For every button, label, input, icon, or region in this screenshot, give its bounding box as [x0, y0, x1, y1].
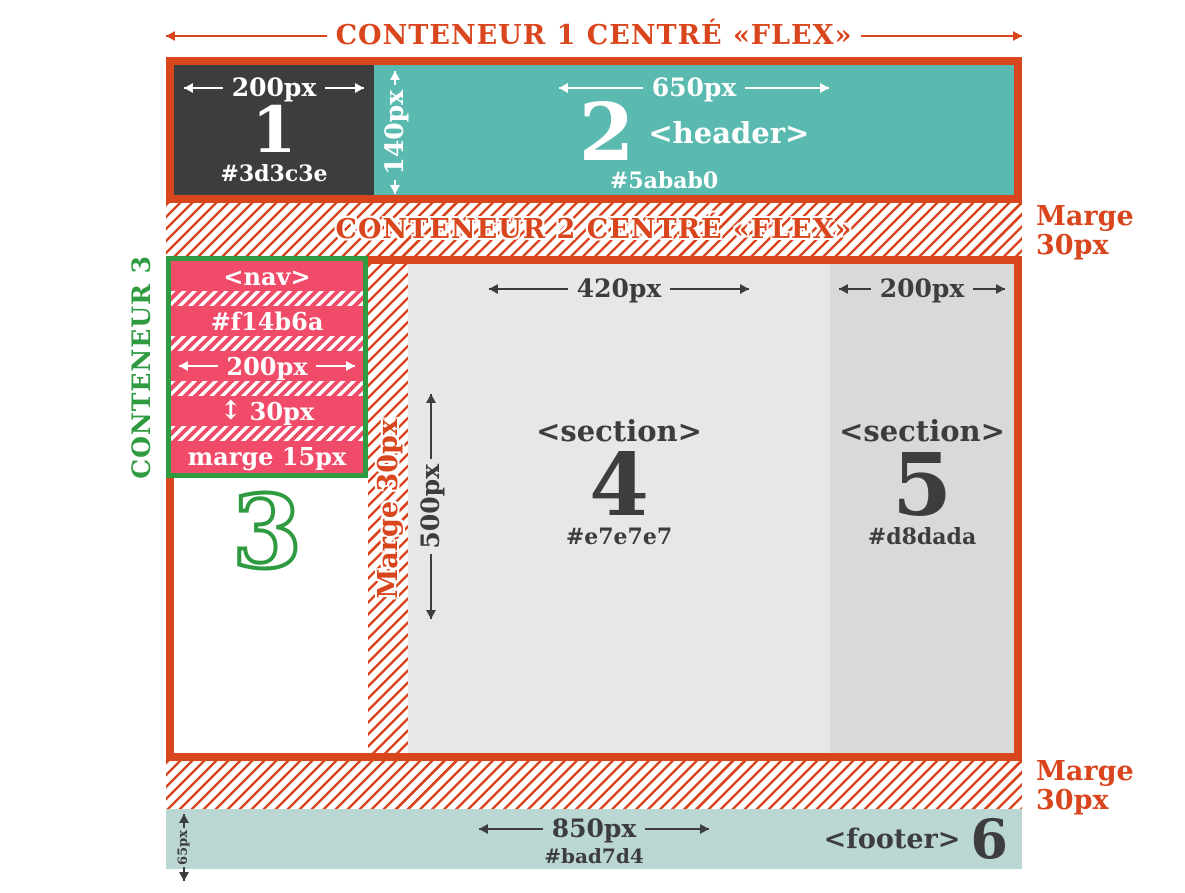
section5-block: 200px <section> 5 #d8dada: [830, 264, 1014, 753]
block2-height-dim: 140px: [380, 71, 409, 189]
marge-30px-label-bottom: Marge 30px: [1036, 757, 1185, 815]
conteneur3-label-wrap: CONTENEUR 3: [122, 253, 160, 481]
dim-line-left: [184, 87, 223, 89]
margin-band-top: CONTENEUR 2 CENTRÉ «FLEX»: [166, 203, 1022, 256]
nav-width-dim: 200px: [171, 351, 363, 381]
nav-hex-row: #f14b6a: [171, 306, 363, 336]
dim-line-right: [670, 288, 749, 290]
footer-number: 6: [970, 815, 1008, 864]
section5-number: 5: [892, 448, 952, 524]
nav-hex: #f14b6a: [211, 307, 324, 336]
dim-line-left: [166, 35, 327, 37]
conteneur1-title-dim: CONTENEUR 1 CENTRÉ «FLEX»: [166, 20, 1022, 51]
conteneur1-title: CONTENEUR 1 CENTRÉ «FLEX»: [336, 20, 853, 51]
section5-width-label: 200px: [880, 274, 965, 303]
dim-line-right: [316, 365, 355, 367]
conteneur1-container: 200px 1 #3d3c3e 140px 650px 2 <header> #…: [166, 57, 1022, 203]
block1-number: 1: [252, 104, 297, 158]
section4-content: <section> 4 #e7e7e7: [408, 414, 830, 550]
conteneur3-label: CONTENEUR 3: [127, 255, 156, 479]
section5-hex: #d8dada: [868, 524, 976, 550]
nav-hatch-stripe: [171, 381, 363, 396]
nav-hatch-stripe: [171, 336, 363, 351]
block2-heading: 2 <header>: [579, 100, 810, 166]
block2-hex: #5abab0: [610, 168, 718, 194]
dim-line-down: [430, 554, 432, 619]
margin-strip-label: Marge 30px: [373, 419, 404, 599]
dim-line-right: [325, 87, 364, 89]
footer-width-dim: 850px: [479, 814, 709, 843]
footer-heading: <footer> 6: [824, 809, 1008, 869]
section4-block: 420px 500px <section> 4 #e7e7e7: [408, 264, 830, 753]
marge-30px-label-top: Marge 30px: [1036, 202, 1185, 260]
nav-block: <nav> #f14b6a 200px ↕ 30px: [166, 256, 368, 478]
nav-row-height-row: ↕ 30px: [171, 396, 363, 426]
footer-tag: <footer>: [824, 824, 961, 855]
footer-hex: #bad7d4: [544, 844, 644, 868]
nav-margin-label: marge 15px: [188, 442, 346, 471]
flex-layout-diagram: CONTENEUR 1 CENTRÉ «FLEX» 200px 1 #3d3c3…: [0, 0, 1185, 893]
footer-block: 65px 850px #bad7d4 <footer> 6: [166, 809, 1022, 869]
block1-hex: #3d3c3e: [220, 161, 327, 187]
section4-width-label: 420px: [577, 274, 662, 303]
dim-line-left: [179, 365, 218, 367]
dim-line-left: [559, 87, 643, 89]
dim-line-down: [394, 180, 396, 194]
section5-width-dim: 200px: [839, 274, 1005, 303]
block1: 200px 1 #3d3c3e: [174, 65, 374, 195]
section4-width-dim: 420px: [489, 274, 749, 303]
nav-margin-row: marge 15px: [171, 441, 363, 471]
dim-line-left: [839, 288, 871, 290]
section5-content: <section> 5 #d8dada: [830, 414, 1014, 550]
nav-tag: <nav>: [223, 262, 310, 291]
block2-width-label: 650px: [652, 73, 737, 102]
dim-line-right: [645, 828, 709, 830]
nav-tag-row: <nav>: [171, 261, 363, 291]
dim-line-left: [489, 288, 568, 290]
block2-header: 140px 650px 2 <header> #5abab0: [374, 65, 1014, 195]
dim-line-left: [479, 828, 543, 830]
conteneur2-container: <nav> #f14b6a 200px ↕ 30px: [166, 256, 1022, 761]
margin-strip-vertical: Marge 30px: [368, 264, 408, 753]
nav-hatch-stripe: [171, 426, 363, 441]
conteneur2-inner: <nav> #f14b6a 200px ↕ 30px: [174, 264, 1014, 753]
dim-line-right: [745, 87, 829, 89]
arrow-up-down-icon: ↕: [220, 396, 242, 426]
dim-line-down: [183, 867, 185, 881]
block3-number: 3: [166, 482, 368, 582]
section4-number: 4: [589, 448, 649, 524]
dim-line-right: [973, 288, 1005, 290]
nav-width-label: 200px: [226, 352, 307, 381]
nav-row-height-label: 30px: [250, 397, 315, 426]
conteneur2-title: CONTENEUR 2 CENTRÉ «FLEX»: [336, 214, 853, 245]
block2-height-label: 140px: [380, 90, 409, 175]
dim-line-right: [861, 35, 1022, 37]
margin-band-bottom: [166, 761, 1022, 809]
block2-tag: <header>: [648, 116, 809, 150]
nav-hatch-stripe: [171, 291, 363, 306]
block2-number: 2: [579, 100, 635, 166]
footer-width-label: 850px: [552, 814, 637, 843]
dim-line-up: [394, 71, 396, 85]
section4-hex: #e7e7e7: [566, 524, 672, 550]
